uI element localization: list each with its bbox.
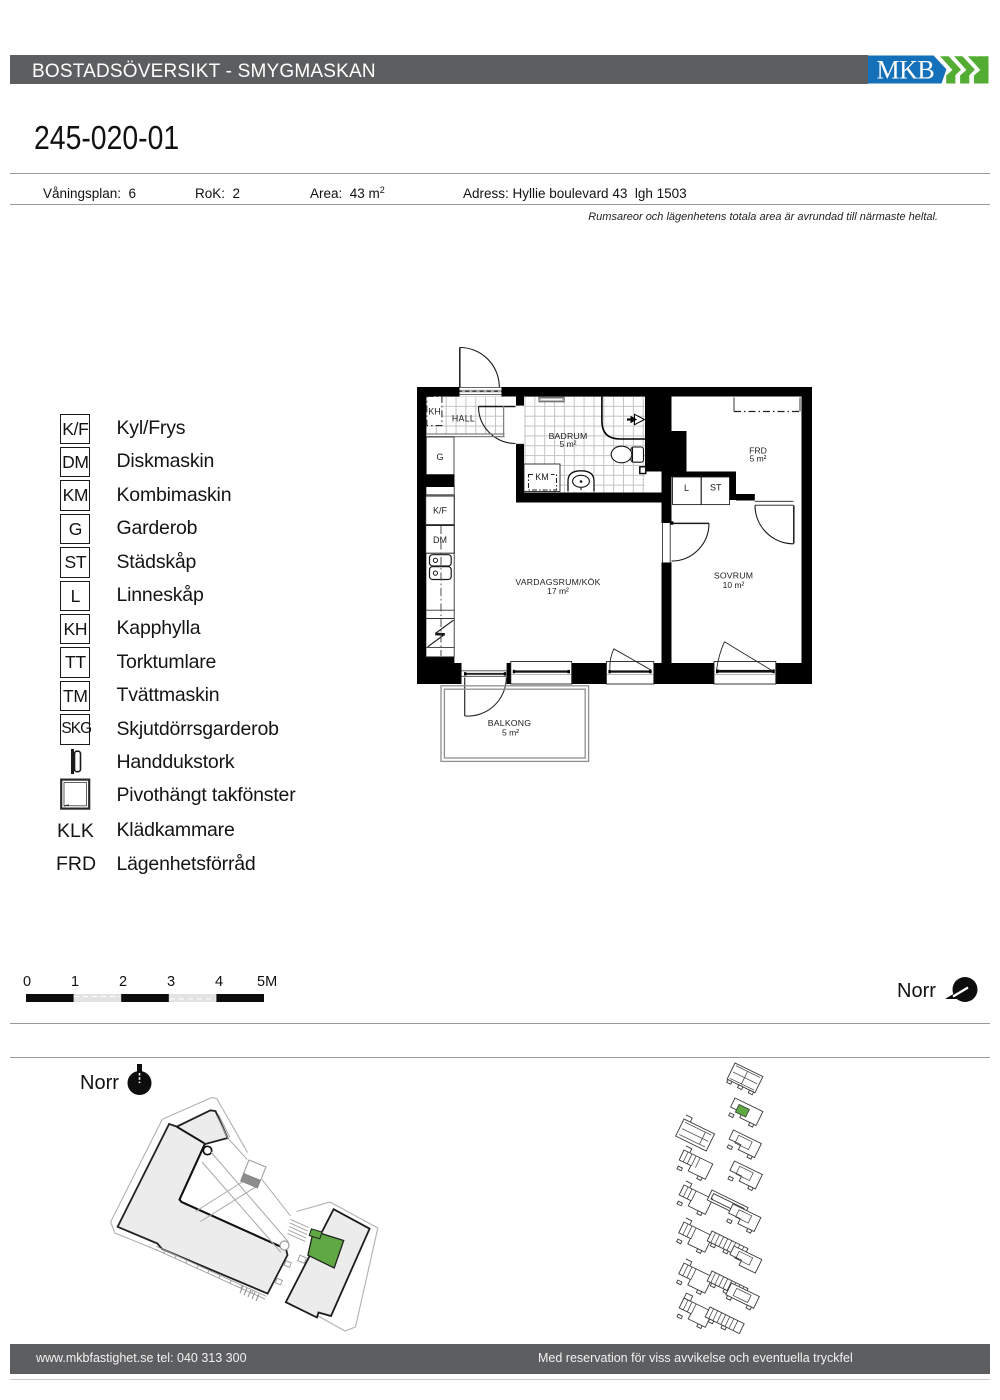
svg-text:DM: DM bbox=[433, 535, 447, 545]
svg-text:HALL: HALL bbox=[452, 413, 475, 423]
svg-text:0: 0 bbox=[23, 974, 31, 990]
svg-text:2: 2 bbox=[119, 974, 127, 990]
svg-text:5 m²: 5 m² bbox=[750, 454, 767, 464]
svg-text:10 m²: 10 m² bbox=[723, 580, 745, 590]
svg-text:K/F: K/F bbox=[433, 506, 448, 516]
svg-text:5 m²: 5 m² bbox=[560, 439, 577, 449]
svg-text:L: L bbox=[684, 483, 689, 493]
svg-text:KH: KH bbox=[428, 406, 440, 416]
svg-text:MKB: MKB bbox=[877, 56, 935, 85]
svg-text:3: 3 bbox=[167, 974, 175, 990]
svg-text:G: G bbox=[436, 452, 443, 462]
svg-text:ST: ST bbox=[710, 483, 722, 493]
svg-text:KM: KM bbox=[535, 472, 549, 482]
svg-text:5M: 5M bbox=[257, 974, 277, 990]
svg-text:5 m²: 5 m² bbox=[502, 727, 519, 737]
svg-text:1: 1 bbox=[71, 974, 79, 990]
svg-text:17 m²: 17 m² bbox=[547, 586, 569, 596]
svg-text:4: 4 bbox=[215, 974, 223, 990]
